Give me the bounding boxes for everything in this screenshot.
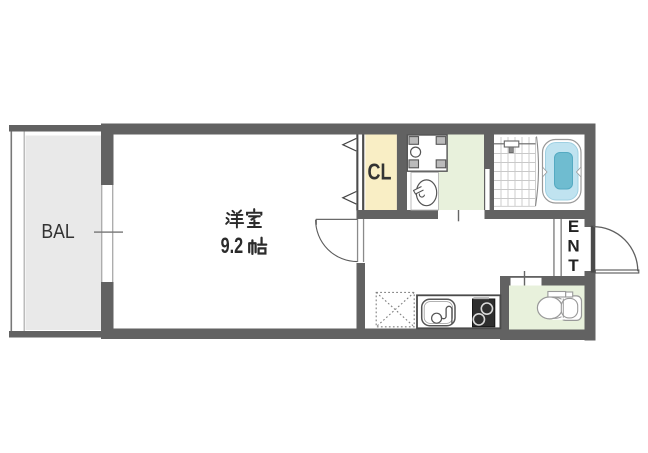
svg-text:T: T [568, 256, 579, 275]
svg-text:CL: CL [368, 159, 392, 185]
svg-text:E: E [568, 217, 579, 236]
svg-text:BAL: BAL [41, 221, 74, 244]
svg-text:N: N [567, 236, 579, 255]
svg-text:9.2: 9.2 [221, 233, 244, 258]
